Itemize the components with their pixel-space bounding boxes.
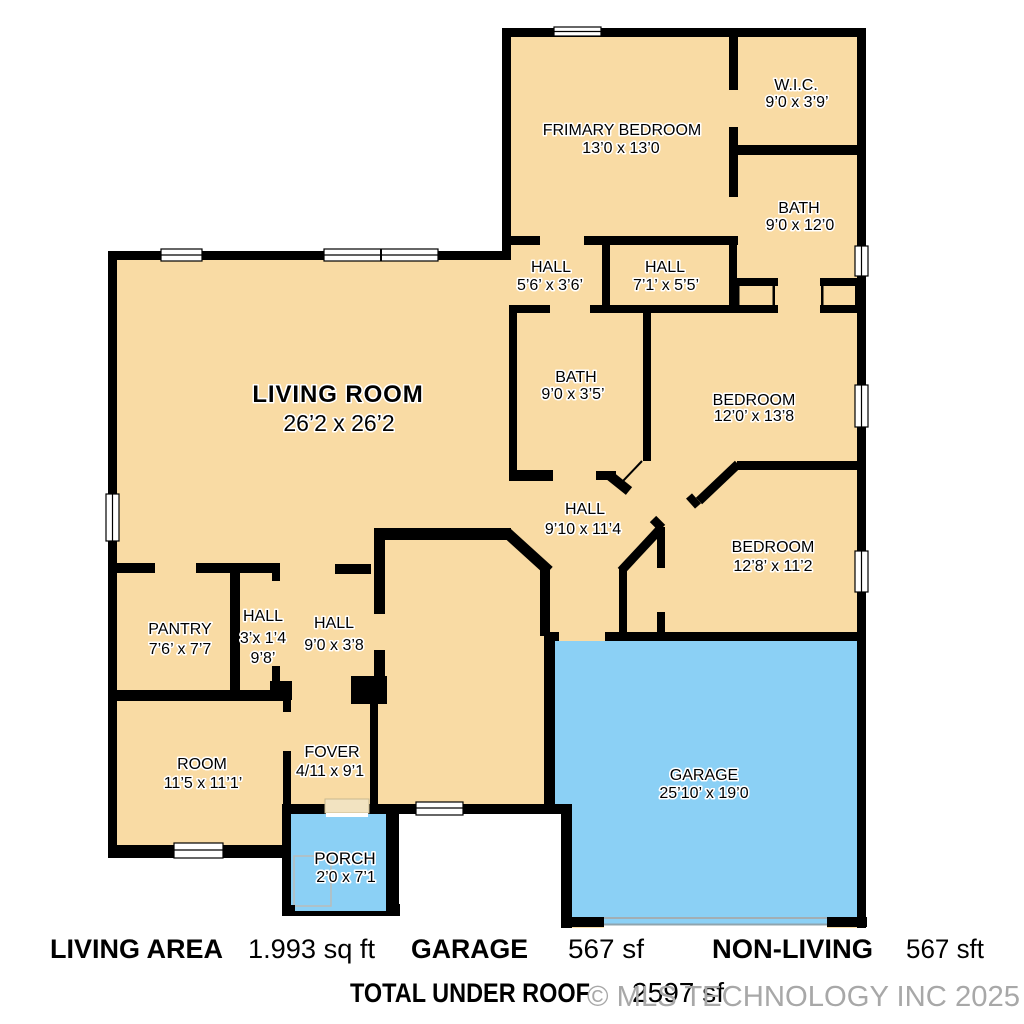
svg-text:© MLS TECHNOLOGY INC 2025: © MLS TECHNOLOGY INC 2025 [587,981,1020,1013]
